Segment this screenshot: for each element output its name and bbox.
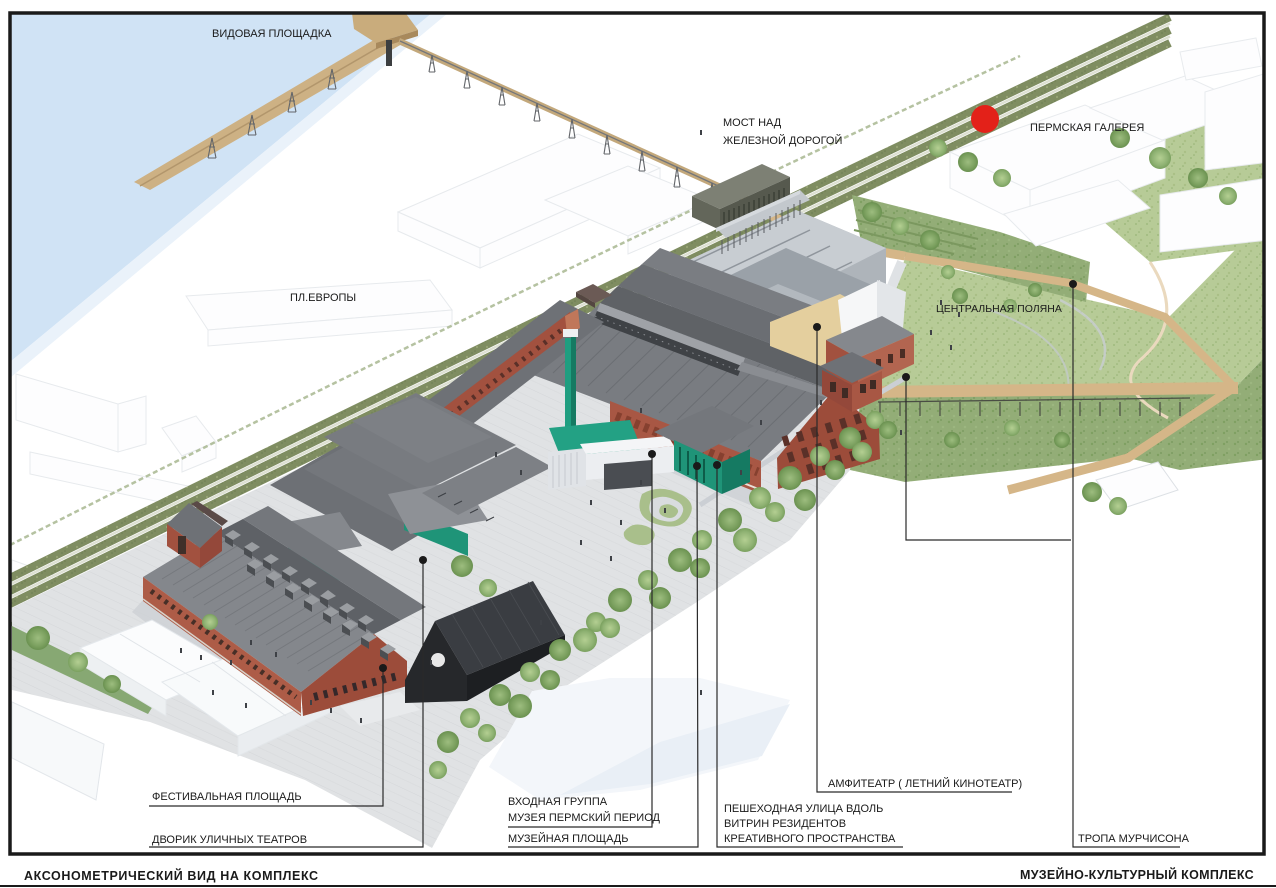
svg-text:ДВОРИК УЛИЧНЫХ ТЕАТРОВ: ДВОРИК УЛИЧНЫХ ТЕАТРОВ: [152, 834, 307, 846]
svg-text:МУЗЕЙНАЯ ПЛОЩАДЬ: МУЗЕЙНАЯ ПЛОЩАДЬ: [508, 832, 628, 845]
svg-text:АКСОНОМЕТРИЧЕСКИЙ ВИД НА КО: АКСОНОМЕТРИЧЕСКИЙ ВИД НА КОМПЛЕКС: [24, 868, 319, 883]
svg-text:ЖЕЛЕЗНОЙ ДОРОГОЙ: ЖЕЛЕЗНОЙ ДОРОГОЙ: [723, 134, 842, 147]
svg-text:ЦЕНТРАЛЬНАЯ ПОЛЯНА: ЦЕНТРАЛЬНАЯ ПОЛЯНА: [936, 303, 1062, 315]
svg-text:ВИТРИН РЕЗИДЕНТОВ: ВИТРИН РЕЗИДЕНТОВ: [724, 818, 846, 830]
svg-text:МУЗЕЯ ПЕРМСКИЙ ПЕРИОД: МУЗЕЯ ПЕРМСКИЙ ПЕРИОД: [508, 811, 661, 824]
svg-text:КРЕАТИВНОГО ПРОСТРАНСТВА: КРЕАТИВНОГО ПРОСТРАНСТВА: [724, 833, 896, 845]
svg-text:ВХОДНАЯ ГРУППА: ВХОДНАЯ ГРУППА: [508, 796, 608, 808]
svg-text:ТРОПА МУРЧИСОНА: ТРОПА МУРЧИСОНА: [1078, 833, 1190, 845]
svg-text:ПЕШЕХОДНАЯ УЛИЦА ВДОЛЬ: ПЕШЕХОДНАЯ УЛИЦА ВДОЛЬ: [724, 803, 883, 815]
svg-text:ФЕСТИВАЛЬНАЯ ПЛОЩАДЬ: ФЕСТИВАЛЬНАЯ ПЛОЩАДЬ: [152, 791, 302, 803]
svg-text:МОСТ НАД: МОСТ НАД: [723, 117, 782, 129]
svg-text:ПЛ.ЕВРОПЫ: ПЛ.ЕВРОПЫ: [290, 292, 356, 304]
svg-text:МУЗЕЙНО-КУЛЬТУРНЫЙ КОМПЛЕКС: МУЗЕЙНО-КУЛЬТУРНЫЙ КОМПЛЕКС: [1020, 867, 1254, 882]
svg-text:ПЕРМСКАЯ ГАЛЕРЕЯ: ПЕРМСКАЯ ГАЛЕРЕЯ: [1030, 122, 1144, 134]
svg-text:АМФИТЕАТР ( ЛЕТНИЙ КИНОТЕАТР): АМФИТЕАТР ( ЛЕТНИЙ КИНОТЕАТР): [828, 777, 1022, 790]
svg-text:ВИДОВАЯ ПЛОЩАДКА: ВИДОВАЯ ПЛОЩАДКА: [212, 28, 332, 40]
